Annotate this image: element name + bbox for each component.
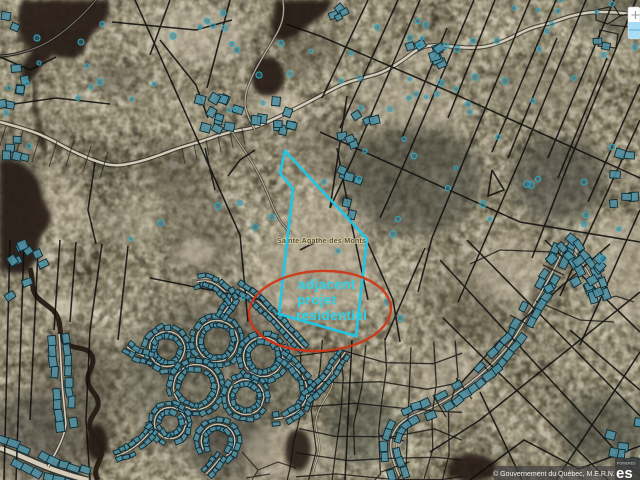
svg-text:© Gouvernement du Québec, M.E.: © Gouvernement du Québec, M.E.R.N. bbox=[493, 470, 615, 478]
svg-text:projet: projet bbox=[297, 293, 337, 308]
svg-text:adjacent: adjacent bbox=[298, 277, 356, 292]
svg-text:residentiel: residentiel bbox=[296, 308, 367, 323]
svg-text:es: es bbox=[616, 465, 633, 480]
svg-text:Sainte-Agathe-des-Monts: Sainte-Agathe-des-Monts bbox=[277, 236, 366, 245]
